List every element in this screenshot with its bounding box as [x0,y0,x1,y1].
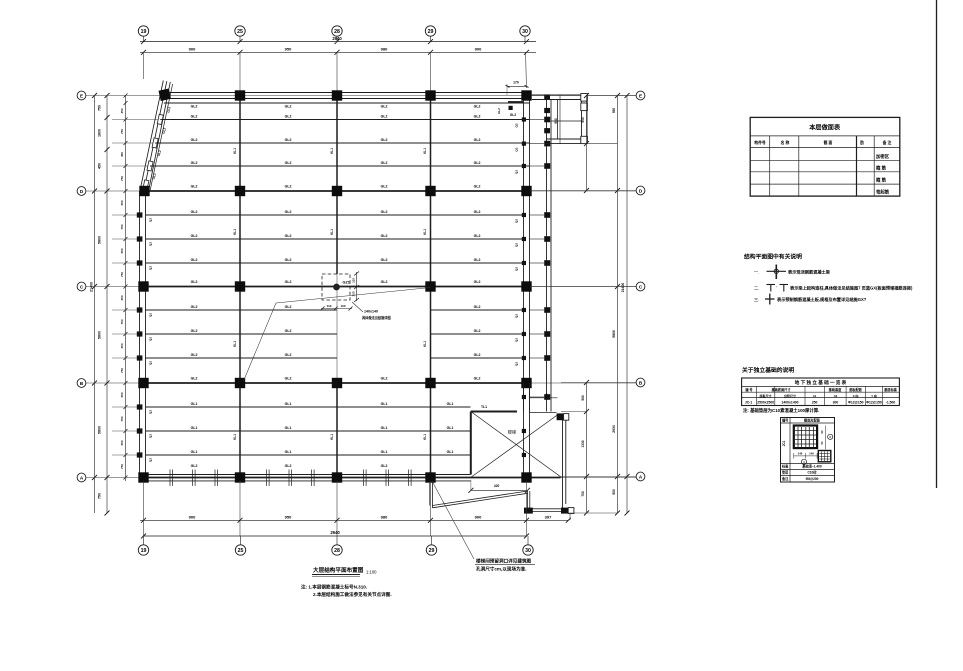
svg-text:·: · [776,284,777,289]
svg-text:Q2: Q2 [149,434,153,438]
svg-text:Q2: Q2 [149,361,153,365]
svg-text:5800: 5800 [98,426,102,434]
svg-text:950: 950 [554,118,558,124]
svg-text:注: 基础垫层为C10素混凝土100厚计算.: 注: 基础垫层为C10素混凝土100厚计算. [743,407,819,414]
svg-text:450: 450 [120,295,124,300]
svg-text:950: 950 [612,108,616,114]
svg-text:5800: 5800 [612,330,616,338]
svg-text:GL1: GL1 [381,450,388,454]
svg-text:GL2: GL2 [381,234,388,238]
svg-text:2940: 2940 [332,36,342,41]
svg-text:750: 750 [120,416,124,421]
svg-text:GL2: GL2 [381,280,388,284]
svg-text:700: 700 [581,491,585,497]
svg-text:2940: 2940 [330,530,340,535]
svg-text:450: 450 [120,440,124,445]
svg-text:h1: h1 [813,394,817,398]
svg-text:1400x1400: 1400x1400 [782,400,799,404]
svg-text:JC-1: JC-1 [745,400,752,404]
svg-text:GL2: GL2 [191,210,198,214]
svg-text:170: 170 [513,81,519,85]
svg-text:GL2: GL2 [285,329,292,333]
svg-text:450: 450 [120,343,124,348]
svg-text:KL1: KL1 [423,148,427,154]
svg-text:GL2: GL2 [191,353,198,357]
svg-text:GL2: GL2 [474,258,481,262]
svg-text:基础高度: 基础高度 [828,387,843,392]
svg-text:名 称: 名 称 [781,140,790,145]
svg-text:Q2: Q2 [149,410,153,414]
svg-text:注: 1.本层钢筋混凝土标号N.310.: 注: 1.本层钢筋混凝土标号N.310. [301,584,367,591]
svg-text:具体做法见结施详图: 具体做法见结施详图 [361,315,391,320]
svg-text:1:100: 1:100 [366,570,377,575]
svg-text:750: 750 [120,272,124,277]
svg-text:900: 900 [475,514,482,519]
svg-text:GL2: GL2 [191,258,198,262]
svg-text:GL1: GL1 [285,450,292,454]
svg-text:GL2: GL2 [474,377,481,381]
svg-text:二.: 二. [754,286,759,291]
svg-text:29: 29 [429,548,435,554]
svg-text:GL1: GL1 [447,450,454,454]
svg-text:编 号: 编 号 [745,387,753,392]
svg-text:110: 110 [327,304,332,308]
svg-text:450: 450 [120,152,124,157]
svg-text:980: 980 [381,514,388,519]
svg-text:Q2: Q2 [515,243,519,247]
svg-text:GL1: GL1 [191,402,198,406]
svg-text:Q2: Q2 [515,338,519,342]
svg-text:900: 900 [189,514,196,519]
svg-text:100: 100 [340,304,345,308]
svg-text:GL2: GL2 [285,280,292,284]
svg-text:25: 25 [237,29,243,35]
svg-text:GL2: GL2 [285,305,292,309]
svg-text:Y 向: Y 向 [871,393,877,398]
svg-text:GL2: GL2 [191,105,198,109]
svg-text:GL2: GL2 [474,105,481,109]
svg-text:GL1: GL1 [285,426,292,430]
svg-text:KL1: KL1 [330,434,334,440]
svg-text:GL2: GL2 [381,161,388,165]
svg-text:GL1: GL1 [285,402,292,406]
svg-text:450: 450 [120,392,124,397]
svg-text:Q2: Q2 [515,147,519,151]
svg-text:GL2: GL2 [474,115,481,119]
svg-text:垫层: 垫层 [782,470,789,475]
svg-text:GL2: GL2 [285,138,292,142]
svg-text:基础顶~1.400: 基础顶~1.400 [801,464,822,469]
svg-text:表示现浇钢筋混凝土梁: 表示现浇钢筋混凝土梁 [788,269,831,276]
svg-text:底板配筋: 底板配筋 [849,387,863,392]
svg-text:Q2: Q2 [149,218,153,222]
svg-text:30: 30 [522,29,528,35]
svg-text:大层结构平面布置图: 大层结构平面布置图 [313,566,364,574]
svg-text:28: 28 [334,29,340,35]
svg-text:GL2: GL2 [285,464,292,468]
svg-text:E: E [639,93,642,98]
svg-text:GL2: GL2 [381,210,388,214]
svg-text:KL1: KL1 [423,434,427,440]
svg-text:楼梯间预留洞口详见建筑图: 楼梯间预留洞口详见建筑图 [476,558,532,565]
svg-text:GL2: GL2 [285,161,292,165]
svg-text:GL1: GL1 [447,402,454,406]
svg-text:三.: 三. [754,297,759,302]
svg-text:750: 750 [120,464,124,469]
svg-text:Q2: Q2 [515,314,519,318]
svg-text:25: 25 [238,548,244,554]
svg-text:21400: 21400 [90,282,94,292]
svg-text:900: 900 [189,47,196,52]
svg-text:截面及配筋: 截面及配筋 [804,418,821,423]
svg-text:1330: 1330 [581,440,585,447]
svg-text:560: 560 [581,395,585,401]
svg-text:地 下 独 立 基 础 一 览 表: 地 下 独 立 基 础 一 览 表 [795,379,847,386]
svg-text:弯起筋: 弯起筋 [876,189,890,196]
svg-text:19: 19 [141,29,147,35]
svg-text:Φ12@150: Φ12@150 [866,400,882,404]
svg-text:30: 30 [525,548,531,554]
svg-text:5800: 5800 [98,236,102,244]
svg-text:GL2: GL2 [285,185,292,189]
svg-text:KL1: KL1 [233,434,237,440]
svg-text:GL1: GL1 [191,450,198,454]
svg-text:GL2: GL2 [191,138,198,142]
svg-text:5800: 5800 [98,331,102,339]
svg-text:750: 750 [98,105,102,111]
svg-text:GL2: GL2 [285,234,292,238]
svg-text:950: 950 [285,514,292,519]
svg-text:980: 980 [381,47,388,52]
svg-text:450: 450 [98,163,102,169]
svg-text:KL1: KL1 [233,229,237,235]
svg-text:GL2: GL2 [510,113,516,117]
svg-text:一.: 一. [754,270,759,275]
svg-text:GL2: GL2 [474,234,481,238]
svg-text:E: E [80,93,83,98]
svg-text:250: 250 [812,400,818,404]
svg-text:140: 140 [798,451,803,455]
svg-text:100: 100 [352,291,356,296]
svg-text:标高: 标高 [781,464,789,469]
svg-text:GL2: GL2 [191,280,198,284]
svg-text:Φ12@150: Φ12@150 [848,400,864,404]
svg-text:h2: h2 [834,394,838,398]
svg-text:GL2: GL2 [497,108,501,114]
svg-text:结构平面图中有关说明: 结构平面图中有关说明 [744,253,802,261]
svg-text:750: 750 [120,176,124,181]
svg-text:表示预制钢筋混凝土板,规格及布置详见结施GX?: 表示预制钢筋混凝土板,规格及布置详见结施GX? [777,296,867,303]
svg-text:GL2: GL2 [191,329,198,333]
svg-text:GL2: GL2 [191,464,198,468]
svg-text:750: 750 [120,129,124,134]
svg-text:GL2: GL2 [474,138,481,142]
svg-text:本层做面表: 本层做面表 [809,124,841,132]
svg-text:GL2: GL2 [474,353,481,357]
svg-text:GL2: GL2 [381,258,388,262]
svg-text:备 注: 备 注 [882,140,892,145]
svg-text:2500x2500: 2500x2500 [757,400,774,404]
svg-text:GL2: GL2 [474,329,481,333]
svg-text:GL1: GL1 [191,426,198,430]
svg-text:GL2: GL2 [285,105,292,109]
svg-text:28: 28 [334,548,340,554]
svg-text:Q2: Q2 [515,170,519,174]
svg-text:KL1: KL1 [423,341,427,347]
svg-text:GL2: GL2 [285,377,292,381]
svg-text:GL1: GL1 [381,426,388,430]
svg-text:X 向: X 向 [853,393,859,398]
svg-text:GL2: GL2 [474,210,481,214]
svg-text:900: 900 [475,47,482,52]
svg-text:Q2: Q2 [515,362,519,366]
svg-text:基础底面尺寸: 基础底面尺寸 [770,387,791,392]
svg-text:底板尺寸: 底板尺寸 [758,393,771,398]
svg-text:GL2: GL2 [191,234,198,238]
svg-text:KL1: KL1 [233,341,237,347]
svg-text:750: 750 [98,493,102,499]
svg-text:KL1: KL1 [330,148,334,154]
svg-text:KL1: KL1 [423,229,427,235]
svg-text:GL2: GL2 [191,305,198,309]
svg-text:GL2: GL2 [381,138,388,142]
svg-text:GL2: GL2 [285,210,292,214]
svg-text:950: 950 [581,117,585,123]
svg-text:2934: 2934 [612,425,616,433]
svg-text:750: 750 [120,368,124,373]
svg-text:Q2: Q2 [149,313,153,317]
svg-text:1800: 1800 [98,129,102,137]
svg-text:140: 140 [809,451,814,455]
svg-text:GL2: GL2 [285,353,292,357]
svg-text:Q2: Q2 [515,267,519,271]
svg-text:Q2: Q2 [149,337,153,341]
svg-text:GL2: GL2 [191,377,198,381]
svg-text:表示梁上起构造柱,具体做法见结施图7 页蓝GX(板面预埋插筋: 表示梁上起构造柱,具体做法见结施图7 页蓝GX(板面预埋插筋连接) [790,285,913,292]
svg-text:楼梯: 楼梯 [508,429,516,436]
svg-text:肋: 肋 [859,140,864,145]
svg-text:450: 450 [120,248,124,253]
svg-text:JC1: JC1 [782,440,786,446]
svg-text:备注: 备注 [781,476,789,481]
svg-text:TL1: TL1 [481,405,487,409]
svg-text:Q2: Q2 [149,266,153,270]
svg-text:19: 19 [141,548,147,554]
svg-text:GL2: GL2 [474,280,481,284]
svg-text:-1.500: -1.500 [886,400,896,404]
svg-text:950: 950 [612,489,616,495]
svg-text:关于独立基础的说明: 关于独立基础的说明 [742,366,794,374]
svg-text:Q2: Q2 [149,458,153,462]
svg-text:750: 750 [120,319,124,324]
svg-text:Q2: Q2 [149,242,153,246]
svg-text:GL2: GL2 [191,185,198,189]
svg-text:孔洞尺寸cm,以现场为准.: 孔洞尺寸cm,以现场为准. [476,566,527,573]
svg-text:箍 筋: 箍 筋 [876,164,887,171]
svg-text:GL2: GL2 [381,464,388,468]
svg-text:GL1: GL1 [381,402,388,406]
svg-text:GL2: GL2 [381,115,388,119]
svg-text:397: 397 [545,514,552,519]
svg-text:GL2: GL2 [285,258,292,262]
svg-text:450: 450 [120,108,124,113]
svg-text:950: 950 [285,47,292,52]
svg-text:Φ8@200: Φ8@200 [806,477,819,481]
svg-text:加密区: 加密区 [875,153,890,160]
svg-text:450: 450 [120,200,124,205]
svg-text:KL1: KL1 [330,229,334,235]
svg-text:GL2: GL2 [474,161,481,165]
svg-text:110: 110 [352,278,356,283]
svg-text:箍 筋: 箍 筋 [876,177,887,184]
svg-text:GL2: GL2 [381,105,388,109]
svg-text:GL1: GL1 [447,426,454,430]
svg-text:29: 29 [428,29,434,35]
svg-text:GL2: GL2 [381,377,388,381]
svg-text:420: 420 [494,484,500,488]
svg-text:300: 300 [833,400,839,404]
svg-text:750: 750 [120,224,124,229]
svg-text:21400: 21400 [621,283,625,293]
svg-text:Q2: Q2 [515,219,519,223]
svg-text:截 面: 截 面 [824,140,833,145]
svg-text:基底标高: 基底标高 [883,387,898,392]
svg-text:Q2: Q2 [515,123,519,127]
svg-text:140x140: 140x140 [364,310,378,314]
svg-text:KL1: KL1 [233,148,237,154]
svg-text:C10砼: C10砼 [807,470,817,475]
svg-text:GL2: GL2 [381,185,388,189]
svg-text:GL2: GL2 [474,185,481,189]
svg-text:750: 750 [545,393,549,398]
svg-text:GL2: GL2 [474,305,481,309]
svg-text:GL2: GL2 [285,115,292,119]
svg-text:构件号: 构件号 [754,140,766,145]
svg-text:GZ1: GZ1 [343,281,350,285]
svg-text:2.本层结构施工做法参见有关节点详图.: 2.本层结构施工做法参见有关节点详图. [313,591,392,598]
svg-text:台阶尺寸: 台阶尺寸 [784,393,796,398]
svg-text:GL2: GL2 [191,115,198,119]
svg-text:编号: 编号 [782,418,789,423]
svg-text:GL2: GL2 [191,161,198,165]
